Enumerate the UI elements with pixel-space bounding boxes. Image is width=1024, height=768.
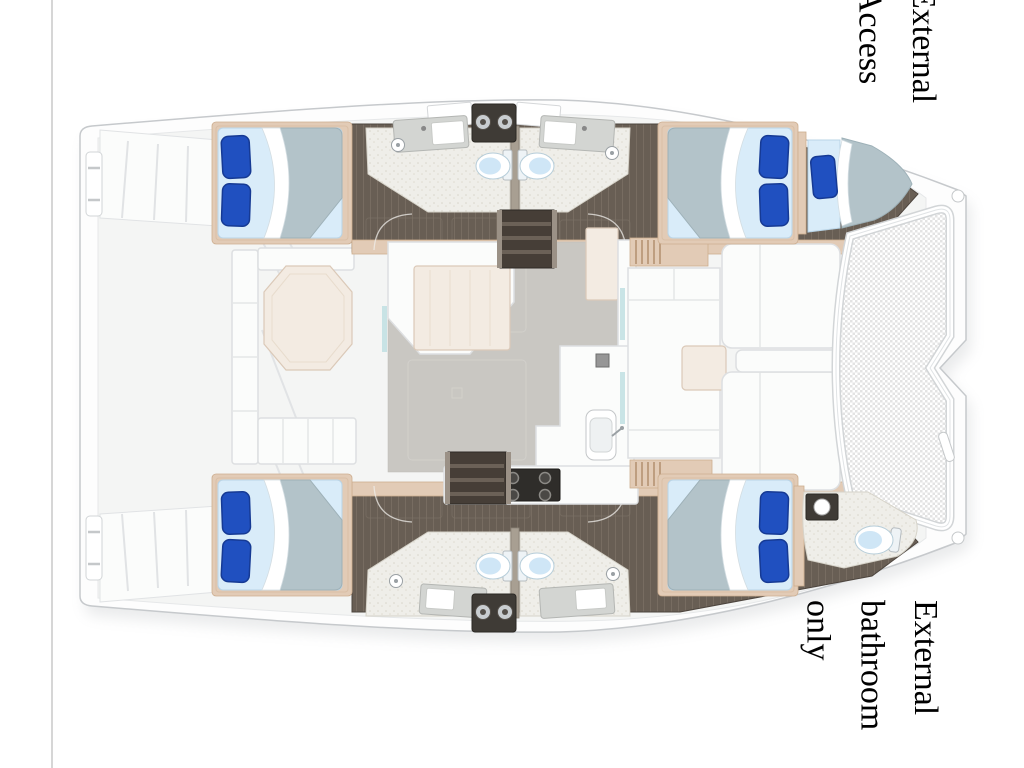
cabin-aft-port bbox=[212, 122, 352, 244]
window-glass bbox=[382, 306, 387, 352]
label-line: External bbox=[896, 0, 950, 103]
washbasin bbox=[539, 583, 615, 618]
bow-cap bbox=[952, 190, 964, 202]
cabinet bbox=[586, 228, 618, 300]
aft-cockpit bbox=[232, 248, 356, 464]
washbasin bbox=[539, 115, 615, 152]
label-line: only bbox=[791, 600, 845, 730]
cabin-forward-starboard bbox=[658, 474, 798, 596]
label-line: Access bbox=[843, 0, 897, 103]
window-glass bbox=[620, 372, 625, 424]
companionway-stairs bbox=[497, 210, 557, 268]
cockpit-bench bbox=[258, 418, 356, 464]
toilet bbox=[855, 526, 902, 554]
label-external-access: External Access bbox=[843, 0, 950, 103]
label-external-bathroom-only: External bathroom only bbox=[791, 600, 952, 730]
saloon bbox=[382, 210, 638, 504]
label-line: External bbox=[898, 600, 952, 730]
appliance bbox=[596, 354, 609, 367]
swim-ladder bbox=[86, 152, 102, 216]
sunpad bbox=[722, 244, 840, 348]
cabin-forward-port bbox=[658, 122, 798, 244]
bow-cap bbox=[952, 532, 964, 544]
companionway-stairs bbox=[445, 452, 511, 504]
cockpit-bench bbox=[736, 350, 840, 372]
cockpit-table bbox=[264, 266, 352, 370]
cabin-aft-starboard bbox=[212, 474, 352, 596]
swim-ladder bbox=[86, 516, 102, 580]
label-line: bathroom bbox=[845, 600, 899, 730]
yacht-layout-diagram: External Access External bathroom only bbox=[0, 0, 1024, 768]
saloon-table bbox=[414, 266, 510, 350]
cockpit-side-table bbox=[682, 346, 726, 390]
pillow bbox=[810, 155, 838, 199]
window-glass bbox=[620, 288, 625, 340]
sunpad bbox=[722, 372, 840, 490]
